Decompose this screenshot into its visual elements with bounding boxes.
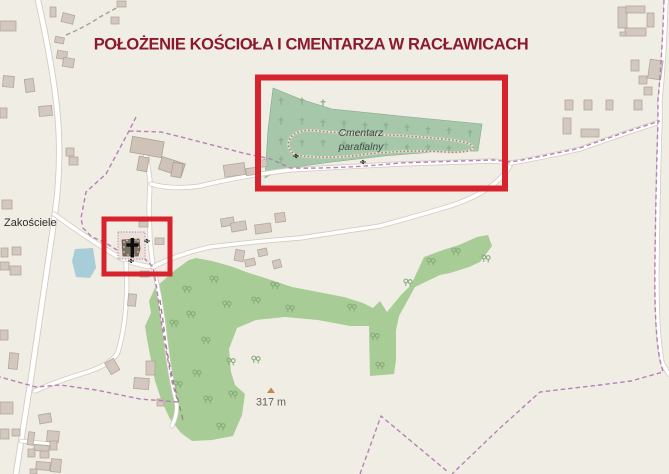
svg-text:Zakościele: Zakościele: [4, 217, 57, 229]
svg-text:317 m: 317 m: [256, 397, 286, 409]
svg-text:Cmentarz: Cmentarz: [339, 128, 384, 139]
svg-text:parafialny: parafialny: [338, 142, 384, 153]
svg-text:POŁOŻENIE KOŚCIOŁA I CMENTARZA: POŁOŻENIE KOŚCIOŁA I CMENTARZA W RACŁAWI…: [94, 35, 529, 54]
